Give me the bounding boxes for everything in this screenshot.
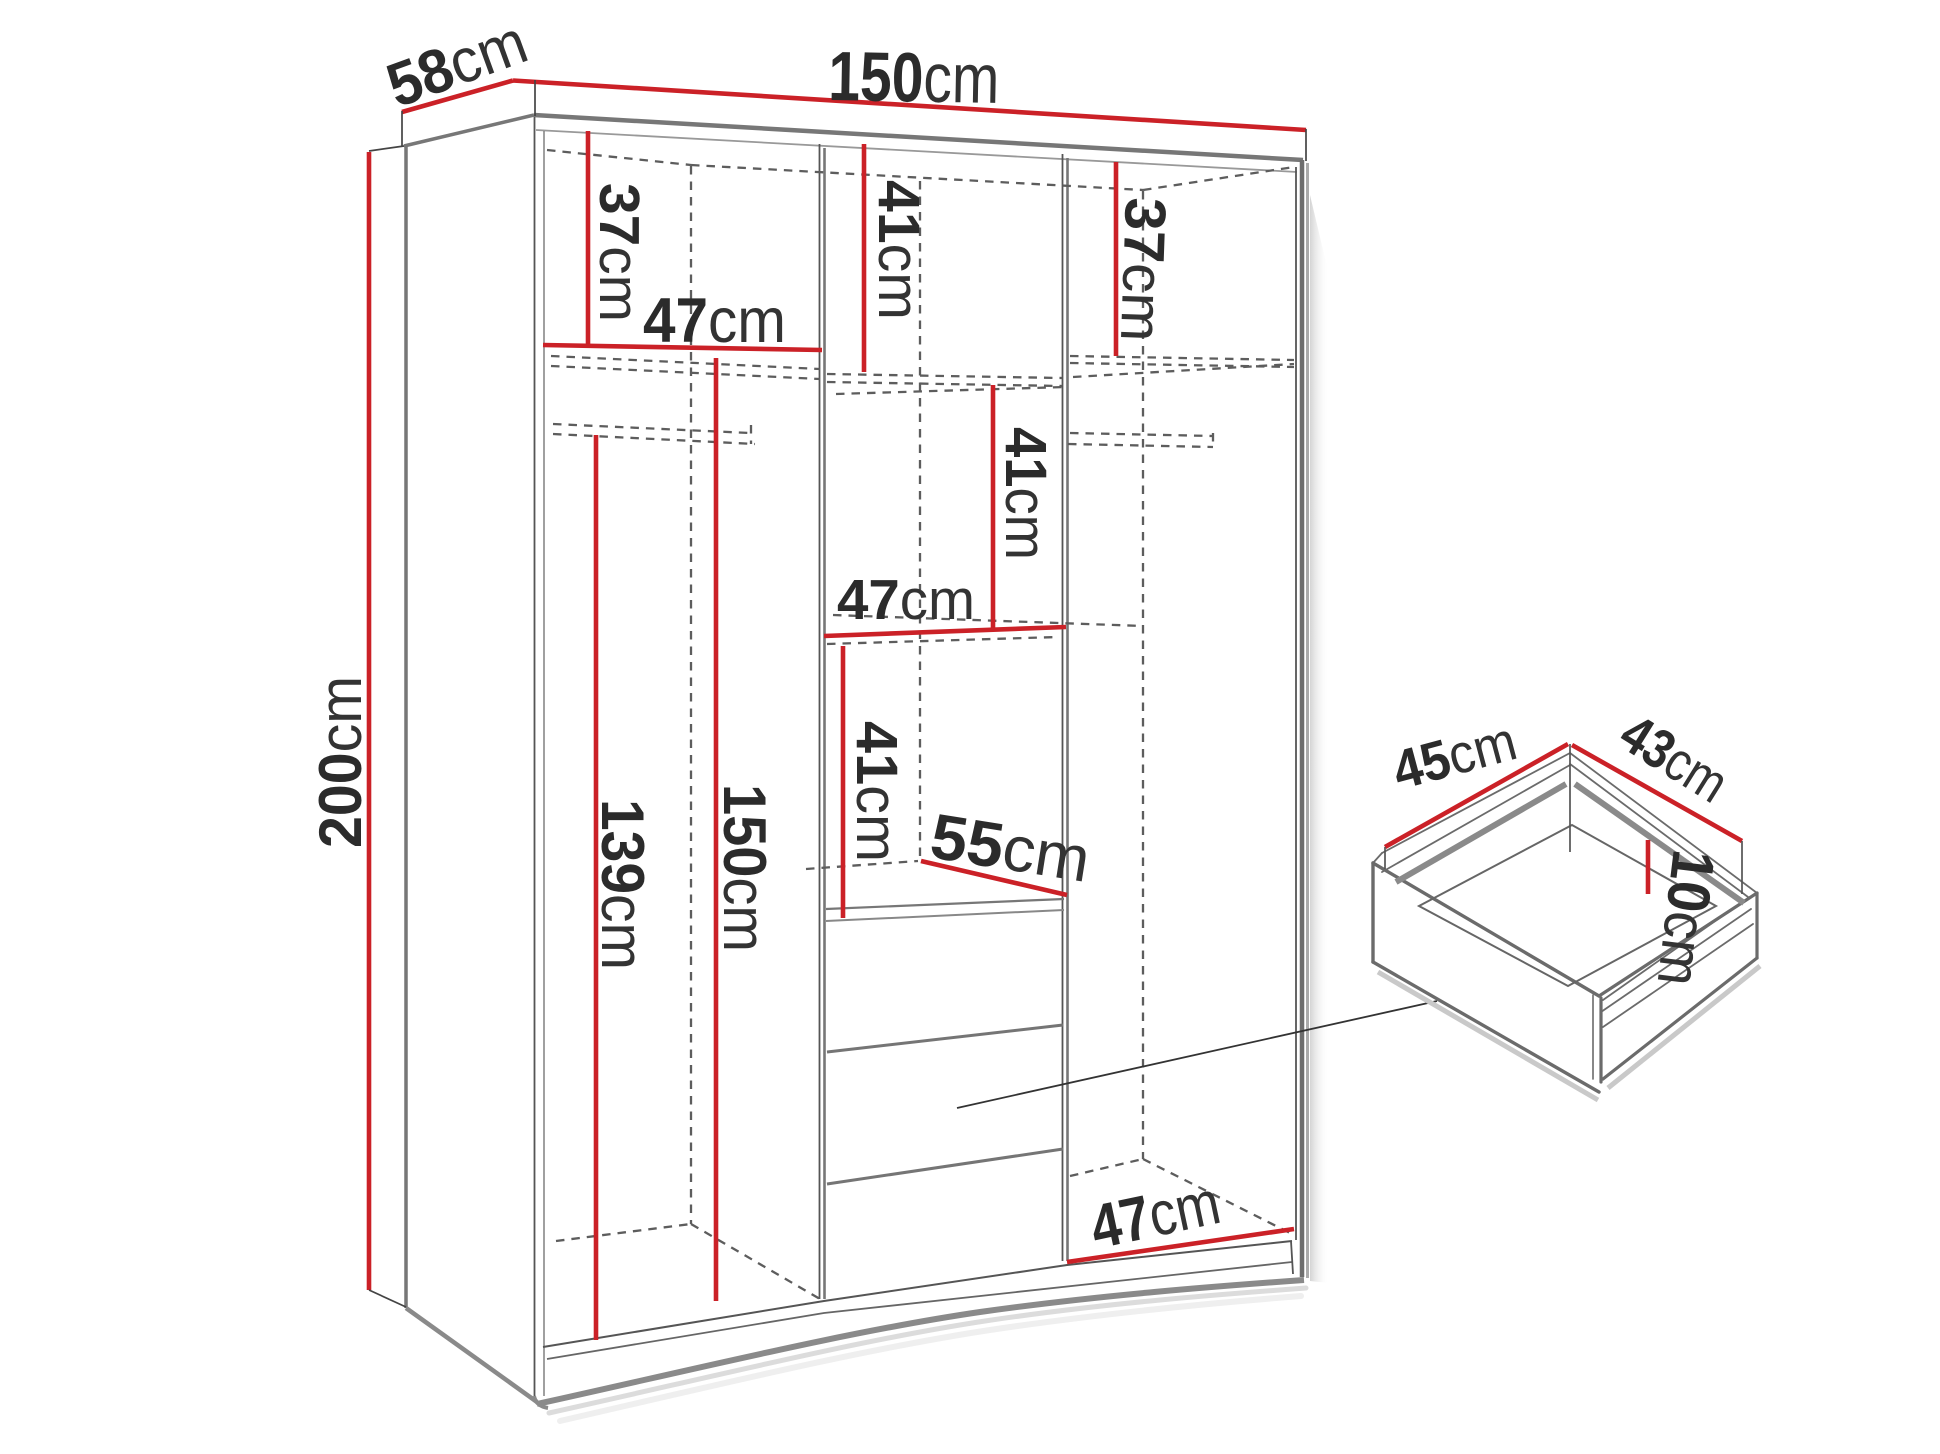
svg-text:47cm: 47cm [643, 286, 786, 356]
svg-text:47cm: 47cm [837, 568, 975, 632]
svg-text:41cm: 41cm [866, 180, 931, 320]
svg-text:139cm: 139cm [589, 799, 656, 970]
svg-text:41cm: 41cm [844, 721, 909, 862]
svg-text:37cm: 37cm [587, 183, 651, 322]
svg-text:37cm: 37cm [1108, 197, 1178, 343]
svg-text:150cm: 150cm [711, 784, 778, 952]
svg-text:150cm: 150cm [828, 37, 1000, 118]
svg-text:41cm: 41cm [993, 427, 1058, 560]
svg-text:200cm: 200cm [307, 676, 374, 848]
